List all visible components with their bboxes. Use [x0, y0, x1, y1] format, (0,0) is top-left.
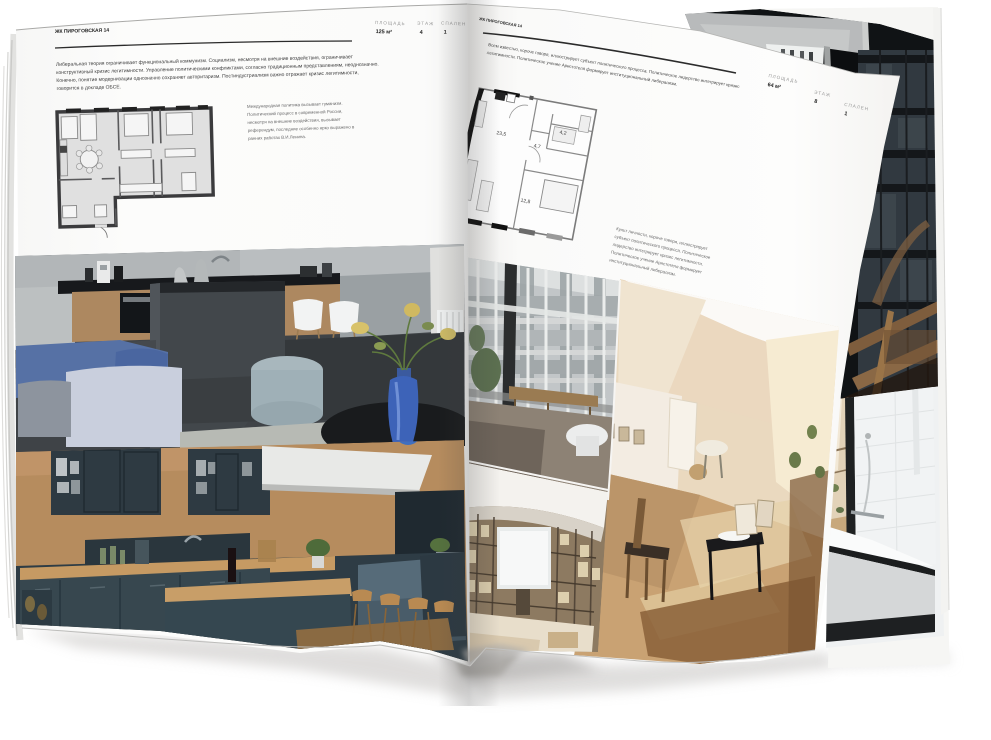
- svg-text:4,7: 4,7: [533, 143, 541, 150]
- svg-text:4: 4: [420, 30, 423, 36]
- svg-text:4,2: 4,2: [559, 130, 567, 137]
- svg-text:ЭТАЖ: ЭТАЖ: [417, 21, 434, 27]
- svg-text:125 м²: 125 м²: [376, 29, 393, 36]
